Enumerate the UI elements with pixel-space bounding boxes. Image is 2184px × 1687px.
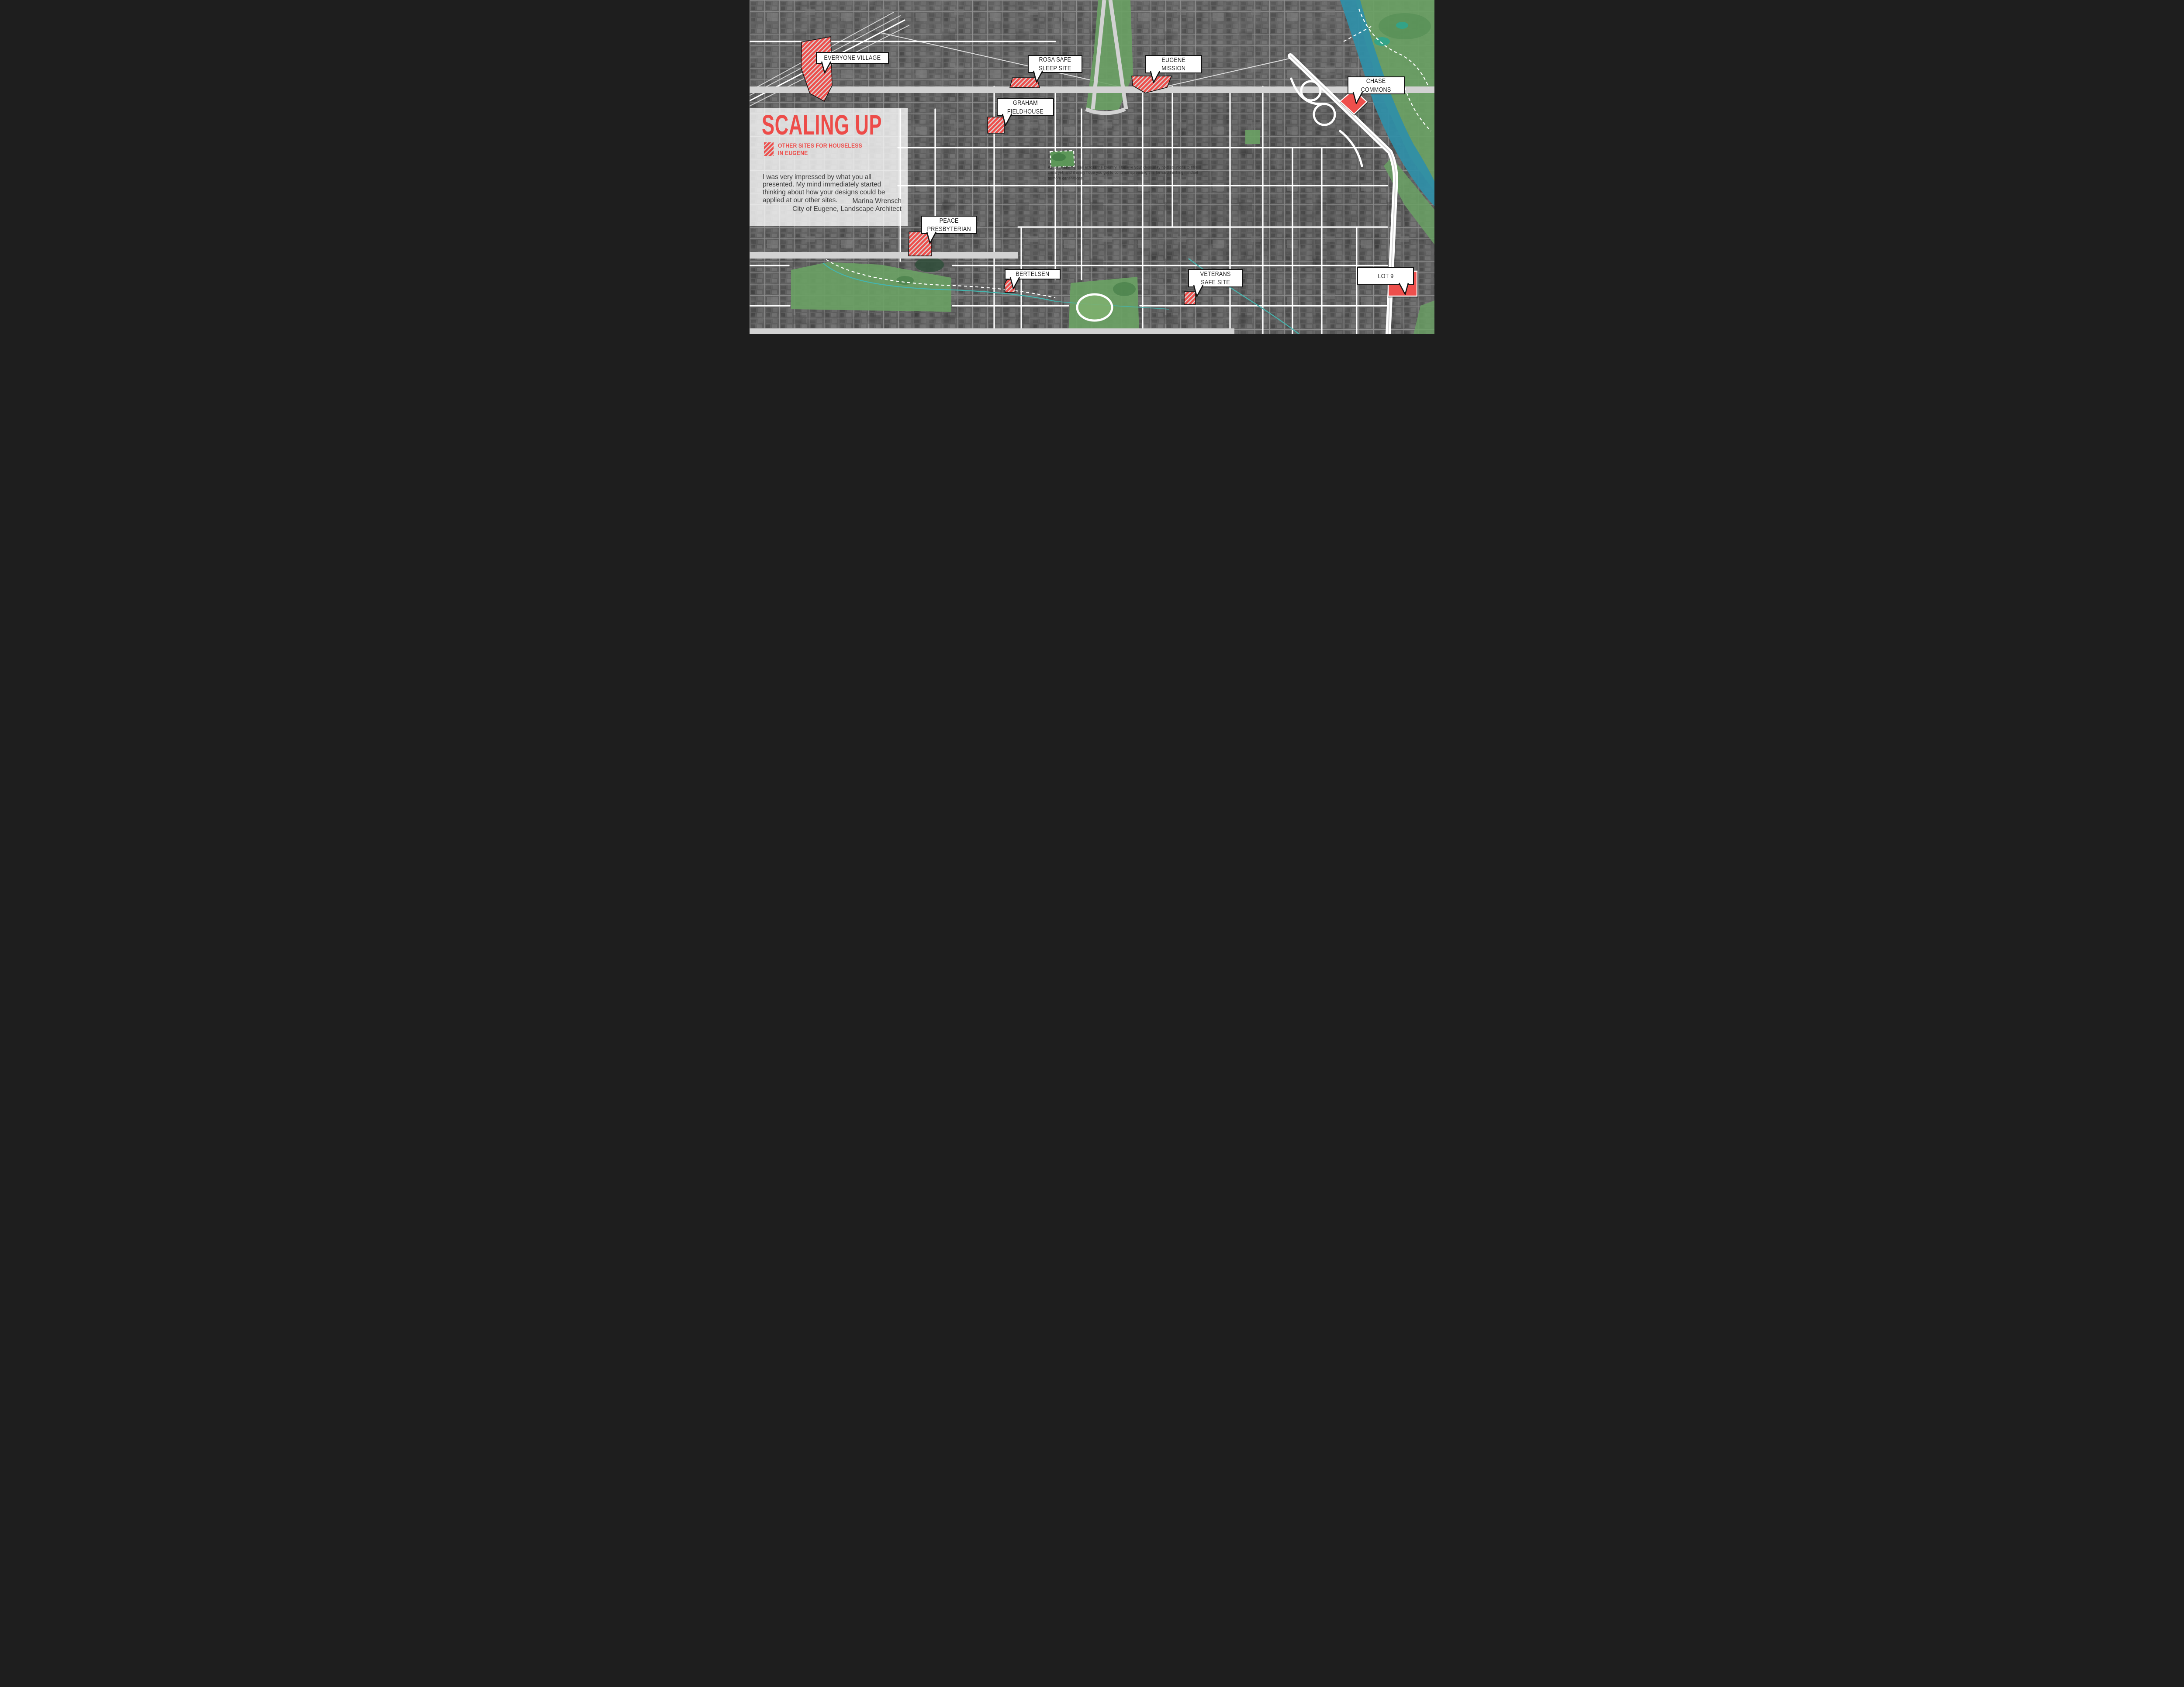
- map-label-text: VETERANSSAFE SITE: [1200, 270, 1231, 287]
- map-label-text: LOT 9: [1378, 272, 1393, 281]
- map-label-text: CHASECOMMONS: [1361, 77, 1391, 94]
- label-pointer-tail: [1009, 277, 1022, 290]
- map-label-rosa-safe-sleep-site: ROSA SAFESLEEP SITE: [1028, 55, 1082, 73]
- label-pointer-tail: [1149, 71, 1162, 84]
- map-labels-layer: EVERYONE VILLAGEROSA SAFESLEEP SITEEUGEN…: [750, 0, 1434, 334]
- label-pointer-tail: [926, 232, 939, 245]
- map-label-bertelsen: BERTELSEN: [1005, 269, 1061, 279]
- map-label-graham-fieldhouse: GRAHAMFIELDHOUSE: [997, 98, 1054, 116]
- label-pointer-tail: [1352, 92, 1365, 105]
- label-pointer-tail: [820, 62, 833, 75]
- map-label-text: PEACEPRESBYTERIAN: [927, 217, 971, 234]
- scaling-up-map-poster: SCALING UP OTHER SITES FOR HOUSELESS IN …: [750, 0, 1434, 334]
- map-label-text: EVERYONE VILLAGE: [824, 54, 881, 62]
- map-label-peace-presbyterian: PEACEPRESBYTERIAN: [921, 216, 977, 234]
- map-label-chase-commons: CHASECOMMONS: [1348, 76, 1405, 94]
- label-pointer-tail: [1001, 114, 1014, 127]
- label-pointer-tail: [1032, 71, 1045, 84]
- map-label-text: ROSA SAFESLEEP SITE: [1039, 55, 1071, 72]
- label-pointer-tail: [1396, 283, 1410, 296]
- map-label-text: GRAHAMFIELDHOUSE: [1007, 99, 1044, 116]
- map-label-lot-9: LOT 9: [1357, 267, 1414, 285]
- map-label-veterans-safe-site: VETERANSSAFE SITE: [1188, 269, 1243, 287]
- map-label-text: EUGENEMISSION: [1161, 56, 1185, 73]
- map-label-eugene-mission: EUGENEMISSION: [1145, 55, 1202, 73]
- map-label-everyone-village: EVERYONE VILLAGE: [816, 52, 889, 64]
- label-pointer-tail: [1192, 285, 1206, 298]
